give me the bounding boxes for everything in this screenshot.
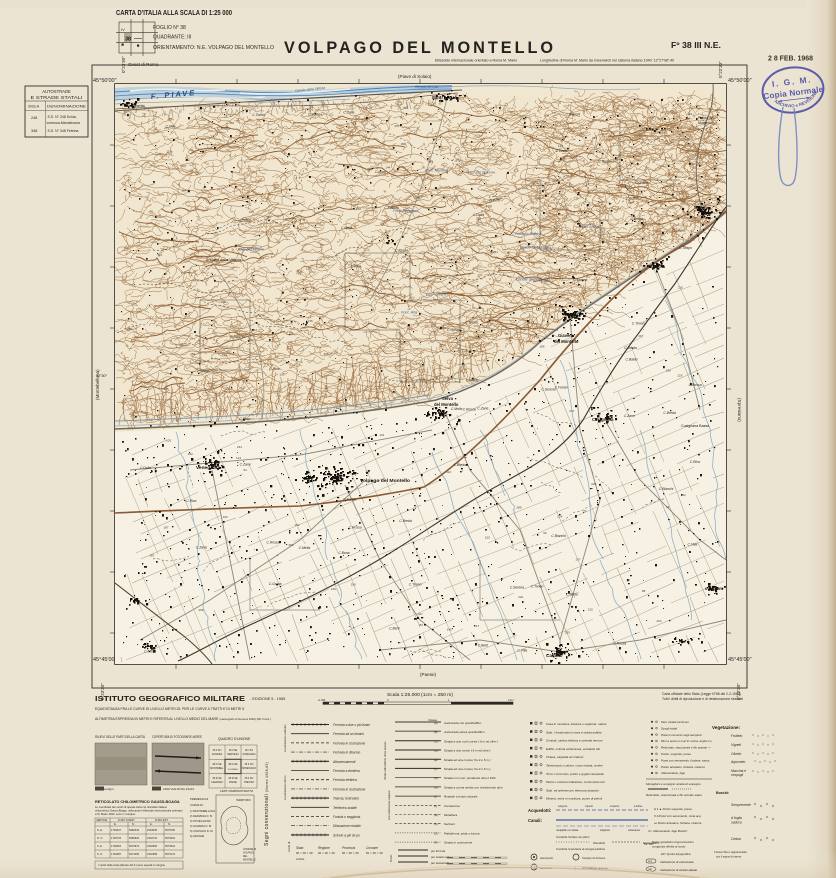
svg-text:210: 210: [588, 607, 593, 611]
svg-text:MONTELLO: MONTELLO: [243, 860, 256, 862]
svg-text:C.Breda: C.Breda: [466, 378, 479, 382]
svg-text:COPERTURA DI FOTOGRAFIE AEREE: COPERTURA DI FOTOGRAFIE AEREE: [152, 735, 202, 739]
svg-text:Aeroporto: Aeroporto: [539, 856, 554, 860]
svg-text:EQUIDISTANZA FRA LE CURVE: EQUIDISTANZA FRA LE CURVE DI LIVELLO MET…: [95, 707, 244, 711]
svg-text:Provincia: Provincia: [342, 846, 355, 850]
svg-text:Pietra o colonna indicatrice,: Pietra o colonna indicatrice, monumento …: [546, 780, 605, 784]
svg-text:135: 135: [308, 319, 313, 323]
svg-text:Ferrovia in disarmo: Ferrovia in disarmo: [333, 751, 361, 755]
svg-text:FUSO OVEST: FUSO OVEST: [118, 818, 135, 822]
svg-text:1) MONTEBELLUNA: 1) MONTEBELLUNA: [190, 809, 215, 813]
svg-text:VOLPAGO DEL MONTELLO: VOLPAGO DEL MONTELLO: [284, 39, 556, 57]
svg-text:sotterraneo: sotterraneo: [628, 829, 641, 832]
svg-text:130: 130: [431, 323, 436, 327]
svg-text:E.: E.: [150, 822, 153, 826]
svg-text:139: 139: [331, 587, 336, 591]
svg-text:345: 345: [319, 205, 324, 209]
svg-text:347: 347: [266, 216, 271, 220]
svg-text:Χ Α Pozzi con serramento, nor: Χ Α Pozzi con serramento, noria acq.: [654, 814, 702, 818]
svg-text:312: 312: [446, 470, 451, 474]
svg-text:C.Serena: C.Serena: [308, 112, 322, 116]
svg-text:45°45′00″: 45°45′00″: [728, 657, 752, 663]
svg-text:scoperto: scoperto: [610, 805, 620, 808]
svg-text:136: 136: [356, 207, 361, 211]
svg-text:Autostrada senza spartitraffic: Autostrada senza spartitraffico: [443, 730, 485, 734]
svg-text:VERTICE: VERTICE: [96, 818, 107, 822]
svg-text:C.Berti: C.Berti: [478, 644, 489, 648]
svg-text:187: 187: [164, 526, 169, 530]
svg-text:45°45′00″: 45°45′00″: [93, 657, 117, 663]
svg-text:124: 124: [236, 456, 241, 460]
svg-text:Strade utilizzabili in clima a: Strade utilizzabili in clima asciutto: [383, 741, 387, 780]
svg-text:1748715: 1748715: [111, 836, 122, 840]
svg-text:144: 144: [259, 256, 264, 260]
svg-text:C.Breda: C.Breda: [217, 126, 230, 130]
svg-text:84: 84: [554, 225, 558, 229]
svg-text:A 4: A 4: [648, 859, 652, 863]
svg-text:QUADRANTE: III: QUADRANTE: III: [153, 35, 191, 41]
svg-text:86: 86: [505, 332, 509, 336]
svg-text:chilometrico Gauss-Boaga, util: chilometrico Gauss-Boaga, utilizzando l’…: [95, 809, 183, 813]
svg-text:256: 256: [351, 582, 356, 586]
svg-text:Ta. 667: Ta. 667: [644, 842, 654, 846]
svg-text:Pista in cemento negli aeropor: Pista in cemento negli aeroporti: [661, 733, 702, 737]
svg-text:Mulattiera: Mulattiera: [444, 813, 458, 817]
svg-text:Tabernacolo o pilone, croce is: Tabernacolo o pilone, croce isolata, cim…: [546, 764, 604, 768]
svg-text:186: 186: [666, 369, 671, 373]
svg-text:0°23′30″: 0°23′30″: [121, 56, 126, 73]
svg-text:Reticolato, staccionata e filo: Reticolato, staccionata e filo spinato s…: [646, 793, 702, 797]
svg-text:Casa in muratura, baracca o ca: Casa in muratura, baracca o capanna, rud…: [546, 722, 607, 726]
svg-text:308: 308: [544, 114, 549, 118]
svg-text:DENOMINAZIONE: DENOMINAZIONE: [47, 105, 87, 109]
svg-text:per autostrada: per autostrada: [430, 861, 449, 865]
svg-text:RETICOLATO CHILOMETRICO GAUS: RETICOLATO CHILOMETRICO GAUSS-BOAGA: [95, 800, 180, 804]
svg-text:Sempreverde: Sempreverde: [731, 803, 751, 807]
svg-text:COMUNE DI: COMUNE DI: [243, 849, 257, 851]
svg-text:1739064: 1739064: [111, 844, 122, 848]
svg-text:Classe: Classe: [428, 718, 438, 722]
svg-text:5070174: 5070174: [165, 852, 176, 856]
svg-text:Stab. ed antenne per telecomun: Stab. ed antenne per telecomunicazioni: [546, 788, 599, 792]
svg-text:C.Bianchi: C.Bianchi: [566, 112, 581, 116]
svg-text:C.Breda: C.Breda: [465, 321, 478, 325]
svg-text:38 III NE: 38 III NE: [228, 763, 238, 766]
svg-text:O: O: [536, 306, 541, 313]
svg-text:113: 113: [365, 321, 370, 325]
svg-text:38 II SO: 38 II SO: [213, 749, 222, 752]
svg-text:- EDIZIONE 5 - 1965: - EDIZIONE 5 - 1965: [250, 697, 285, 701]
svg-text:TERRITORIO: TERRITORIO: [236, 799, 251, 802]
svg-text:C.Berti: C.Berti: [389, 627, 400, 631]
svg-text:VOLPAGO: VOLPAGO: [243, 852, 254, 855]
svg-text:307: 307: [418, 612, 423, 616]
svg-text:Attraversamenti: Attraversamenti: [332, 760, 356, 764]
svg-text:C.Tonon: C.Tonon: [531, 584, 544, 588]
svg-text:C.Mella: C.Mella: [144, 650, 156, 654]
svg-text:296: 296: [221, 300, 226, 304]
svg-text:2302710: 2302710: [147, 836, 158, 840]
svg-text:308: 308: [414, 196, 419, 200]
svg-text:(G): (G): [434, 776, 438, 780]
svg-text:C.Zane: C.Zane: [196, 546, 207, 550]
svg-text:C.Rossa: C.Rossa: [395, 249, 408, 253]
svg-text:5070522: 5070522: [165, 844, 176, 848]
svg-text:(H): (H): [434, 785, 438, 789]
svg-text:308: 308: [324, 352, 329, 356]
svg-text:C.Serena: C.Serena: [541, 387, 555, 391]
svg-text:SUSEGANA: SUSEGANA: [242, 753, 256, 756]
svg-text:94: 94: [244, 468, 248, 472]
svg-text:38 I SO: 38 I SO: [245, 749, 253, 752]
svg-text:C.Zane: C.Zane: [624, 414, 635, 418]
svg-text:QUADRO D’UNIONE: QUADRO D’UNIONE: [218, 737, 251, 741]
svg-text:(M): (M): [434, 813, 438, 817]
svg-text:348: 348: [31, 129, 37, 133]
svg-text:C.Zane: C.Zane: [240, 462, 251, 466]
svg-text:38 II SE: 38 II SE: [229, 749, 238, 752]
svg-text:C.Tonon: C.Tonon: [252, 113, 265, 117]
svg-text:Il bosco fitto è rappresentato: Il bosco fitto è rappresentato: [714, 850, 747, 854]
svg-text:confine: confine: [296, 857, 305, 861]
svg-text:(E): (E): [434, 758, 438, 762]
svg-text:2) NERVESA D. B.: 2) NERVESA D. B.: [190, 814, 213, 818]
svg-text:(Paese): (Paese): [420, 672, 437, 677]
svg-text:N. E.: N. E.: [97, 828, 103, 832]
svg-text:C.Breda: C.Breda: [454, 463, 467, 467]
svg-text:38 II SO: 38 II SO: [245, 777, 254, 780]
svg-text:103: 103: [166, 439, 171, 443]
svg-text:AUTOSTRADE: AUTOSTRADE: [42, 89, 71, 94]
svg-text:A scartamento ridotto: A scartamento ridotto: [283, 775, 287, 800]
svg-text:Santi Angeli: Santi Angeli: [432, 95, 457, 100]
svg-text:253: 253: [190, 352, 195, 356]
svg-text:C.Riva: C.Riva: [186, 499, 196, 503]
svg-text:C.Serena: C.Serena: [510, 585, 524, 589]
svg-text:Font. Frescada: Font. Frescada: [393, 209, 419, 213]
svg-text:103: 103: [279, 373, 284, 377]
svg-text:88: 88: [642, 589, 646, 593]
svg-text:Font. Munera: Font. Munera: [425, 169, 448, 173]
svg-text:38 III SE: 38 III SE: [212, 777, 222, 780]
svg-text:Reticolato, staccionata e filo: Reticolato, staccionata e filo spinato —: [661, 746, 711, 750]
svg-text:⊙○ Abbeveratoio, lago Boschi: ⊙○ Abbeveratoio, lago Boschi:: [648, 829, 688, 833]
svg-text:137: 137: [575, 558, 580, 562]
svg-text:Ghirada dei Lavi: Ghirada dei Lavi: [415, 85, 439, 89]
svg-text:PAESE: PAESE: [229, 781, 237, 784]
svg-text:Canale della Vittoria: Canale della Vittoria: [516, 278, 550, 282]
svg-text:C.Serena: C.Serena: [573, 278, 587, 282]
svg-text:(Piave di Solaio): (Piave di Solaio): [398, 74, 432, 79]
svg-text:Le coordinate dei vertici di q: Le coordinate dei vertici di questa cart…: [95, 805, 168, 809]
svg-text:Riva del Molino: Riva del Molino: [238, 248, 264, 252]
svg-text:C.Tonon: C.Tonon: [409, 583, 422, 587]
svg-text:135: 135: [378, 366, 383, 370]
svg-text:C.Tonon: C.Tonon: [632, 322, 645, 326]
svg-text:Punto geodetico trigonometrico: Punto geodetico trigonometrico: [652, 840, 694, 844]
svg-text:.247 Quota topografica: .247 Quota topografica: [660, 852, 691, 856]
svg-text:Abbeveratoio, lago: Abbeveratoio, lago: [660, 771, 685, 775]
svg-text:Ferrovia in costruzione: Ferrovia in costruzione: [333, 787, 365, 791]
svg-text:Fontana Bianca: Fontana Bianca: [515, 232, 542, 236]
svg-text:Boschi:: Boschi:: [716, 791, 729, 795]
svg-text:1960 Vold RC5a 23x23: 1960 Vold RC5a 23x23: [163, 787, 194, 791]
svg-text:(N): (N): [434, 822, 438, 826]
svg-text:Pianta del: Pianta del: [698, 116, 714, 120]
svg-text:220: 220: [591, 482, 596, 486]
svg-text:coperto: coperto: [585, 805, 594, 808]
svg-text:74: 74: [626, 578, 630, 582]
svg-text:C.Mella: C.Mella: [451, 407, 463, 411]
svg-text:Rotabile a fondo naturale: Rotabile a fondo naturale: [444, 795, 478, 799]
svg-text:2302389: 2302389: [147, 852, 158, 856]
svg-text:Pozzi con serramento, fontana,: Pozzi con serramento, fontana, vasca: [661, 758, 710, 762]
svg-text:E.: E.: [114, 822, 117, 826]
svg-text:C.Breda: C.Breda: [663, 411, 676, 415]
svg-text:149: 149: [447, 628, 452, 632]
svg-text:283: 283: [289, 543, 294, 547]
svg-text:Carrareccia: Carrareccia: [444, 804, 460, 808]
svg-text:S.Maria della Vittoria: S.Maria della Vittoria: [206, 258, 242, 262]
svg-text:C.Grava: C.Grava: [673, 229, 686, 233]
svg-text:187: 187: [149, 553, 154, 557]
svg-text:308: 308: [401, 142, 406, 146]
svg-text:217: 217: [474, 624, 479, 628]
svg-text:(D): (D): [434, 749, 438, 753]
svg-text:Bavaria: Bavaria: [649, 264, 665, 269]
svg-text:Condotta forzata con piloni: Condotta forzata con piloni: [556, 835, 590, 839]
svg-text:m.300: m.300: [318, 698, 326, 702]
svg-text:5071056: 5071056: [129, 852, 140, 856]
svg-text:C.Riva: C.Riva: [351, 265, 361, 269]
svg-text:Vegetazione:: Vegetazione:: [712, 725, 741, 730]
svg-text:Torre o torre faro, pozzo e gu: Torre o torre faro, pozzo e guglia campa…: [546, 772, 604, 776]
svg-text:248: 248: [31, 116, 37, 120]
svg-text:267: 267: [638, 334, 643, 338]
svg-text:Montello: Montello: [698, 121, 712, 125]
svg-text:Ferrovia a dentiera: Ferrovia a dentiera: [333, 769, 360, 773]
svg-text:Pozzo artesiano, fontana, cist: Pozzo artesiano, fontana, cisterna: [661, 765, 705, 769]
svg-text:C.Dalla: C.Dalla: [140, 466, 151, 470]
svg-text:TREVISO: TREVISO: [244, 781, 255, 784]
svg-text:C.Breda: C.Breda: [624, 346, 637, 350]
svg-text:FUSO EST: FUSO EST: [155, 818, 168, 822]
svg-text:N.: N.: [168, 822, 171, 826]
svg-text:5079462: 5079462: [165, 836, 176, 840]
svg-text:Oleodotto: Oleodotto: [593, 841, 606, 845]
svg-text:2 8 FEB. 1968: 2 8 FEB. 1968: [768, 54, 813, 63]
svg-text:Miniera, serra in muratura, po: Miniera, serra in muratura, pozzo di pet…: [546, 797, 603, 801]
svg-text:Fos. Vecchio: Fos. Vecchio: [426, 292, 448, 296]
svg-text:Ovest di Roma: Ovest di Roma: [128, 62, 159, 67]
svg-text:224: 224: [557, 514, 562, 518]
svg-text:247: 247: [365, 470, 370, 474]
svg-text:C.Riva: C.Riva: [240, 218, 250, 222]
svg-text:Ferrovia in costruzione: Ferrovia in costruzione: [333, 741, 365, 745]
svg-text:1749087: 1749087: [111, 852, 122, 856]
svg-text:1739027: 1739027: [111, 828, 122, 832]
svg-text:C.Riva: C.Riva: [269, 367, 279, 371]
svg-text:(L): (L): [434, 804, 437, 808]
svg-text:Indicazione di strada statale: Indicazione di strada statale: [660, 868, 698, 872]
svg-text:2 km.: 2 km.: [508, 698, 515, 702]
svg-text:MONTEBEL.: MONTEBEL.: [210, 767, 224, 770]
svg-text:S. O.: S. O.: [97, 852, 103, 856]
svg-text:solo nella buona stagione: solo nella buona stagione: [387, 790, 391, 820]
svg-text:(C): (C): [434, 739, 438, 743]
svg-text:222: 222: [185, 158, 190, 162]
svg-text:Limiti di:: Limiti di:: [287, 841, 291, 852]
svg-text:ovegliaro: ovegliaro: [705, 586, 724, 591]
svg-text:215: 215: [422, 177, 427, 181]
svg-text:144: 144: [385, 166, 390, 170]
svg-text:(I): (I): [434, 795, 437, 799]
svg-text:262: 262: [681, 493, 686, 497]
svg-text:vonesca-Marosticana: vonesca-Marosticana: [47, 121, 80, 125]
svg-text:C.Rossa: C.Rossa: [598, 159, 611, 163]
svg-text:PREMESSA DI: PREMESSA DI: [190, 797, 208, 801]
svg-text:234: 234: [237, 445, 242, 449]
svg-text:del Montello: del Montello: [554, 339, 579, 344]
svg-text:VOLPAGO: VOLPAGO: [228, 768, 239, 771]
svg-text:Ellissoide internazionale orie: Ellissoide internazionale orientato a Ro…: [435, 59, 517, 63]
svg-text:124: 124: [558, 144, 563, 148]
svg-text:5079760: 5079760: [165, 828, 176, 832]
svg-text:CAERANO: CAERANO: [211, 781, 223, 784]
svg-text:94: 94: [666, 505, 670, 509]
svg-text:C.Breda: C.Breda: [399, 519, 412, 523]
svg-text:C.Breda: C.Breda: [631, 217, 644, 221]
svg-text:RILIEVI DELLE PARTI DELLA CART: RILIEVI DELLE PARTI DELLA CARTA: [95, 735, 146, 739]
svg-text:352: 352: [188, 452, 193, 456]
svg-text:C.Moro: C.Moro: [239, 417, 250, 421]
svg-text:per ferrovia: per ferrovia: [430, 849, 446, 853]
svg-text:Strada a due o più corsie ( 6: Strada a due o più corsie ( 6 m ed oltre…: [444, 739, 498, 743]
svg-text:C.Mella: C.Mella: [299, 546, 311, 550]
svg-text:204: 204: [657, 619, 662, 623]
svg-text:C.Bianchi: C.Bianchi: [659, 487, 674, 491]
svg-text:C.Bona: C.Bona: [338, 551, 349, 555]
svg-text:congiunta riferita al suolo: congiunta riferita al suolo: [652, 845, 686, 849]
svg-text:C.Gatto: C.Gatto: [556, 149, 568, 153]
svg-text:SPRESIANO: SPRESIANO: [242, 767, 256, 770]
svg-text:345: 345: [164, 387, 169, 391]
svg-text:206: 206: [259, 144, 264, 148]
svg-text:C.Furlan: C.Furlan: [343, 498, 356, 502]
svg-text:114: 114: [182, 189, 187, 193]
svg-text:C.Rossa: C.Rossa: [349, 526, 362, 530]
svg-text:100: 100: [223, 515, 228, 519]
svg-text:Strada ad una corsia ( fra 3 e: Strada ad una corsia ( fra 3 e 6 m ): [444, 758, 491, 762]
svg-text:290: 290: [127, 327, 132, 331]
svg-text:266: 266: [199, 608, 204, 612]
svg-text:311: 311: [157, 253, 162, 257]
svg-text:287: 287: [456, 158, 461, 162]
svg-text:C.Berti: C.Berti: [489, 199, 500, 203]
svg-text:212: 212: [252, 328, 257, 332]
svg-text:C.Zane: C.Zane: [477, 406, 488, 410]
svg-text:Ferrovia elettrica: Ferrovia elettrica: [333, 778, 357, 782]
svg-text:125: 125: [306, 266, 311, 270]
svg-text:5) VOLPAGO D. M.: 5) VOLPAGO D. M.: [190, 829, 213, 833]
svg-text:Frutteto: Frutteto: [731, 734, 743, 738]
svg-text:T: T: [402, 294, 407, 301]
svg-text:186: 186: [540, 345, 545, 349]
svg-text:83: 83: [420, 623, 424, 627]
svg-text:(Montebelluna): (Montebelluna): [95, 369, 100, 400]
svg-text:Carta ufficiale dello Stato (L: Carta ufficiale dello Stato (Legge N°68 …: [662, 692, 741, 696]
svg-text:IV: IV: [121, 27, 125, 32]
svg-text:215: 215: [485, 536, 490, 540]
svg-text:ORIENTAMENTO: N.E. VOLPAGO DEL: ORIENTAMENTO: N.E. VOLPAGO DEL MONTELLO: [153, 45, 274, 51]
svg-text:Cusignana: Cusignana: [592, 417, 614, 422]
svg-text:DEL: DEL: [243, 856, 248, 858]
svg-text:N.: N.: [132, 822, 135, 826]
svg-text:5080694: 5080694: [129, 836, 140, 840]
svg-text:(O): (O): [434, 831, 438, 835]
svg-text:Strada con muri, pendenza oltr: Strada con muri, pendenza oltre il 10%: [444, 776, 496, 780]
svg-text:C.Dalla: C.Dalla: [343, 110, 354, 114]
svg-text:Agrumeto: Agrumeto: [730, 760, 745, 764]
svg-text:Scala 1:25.000 (1cm = 250 m): Scala 1:25.000 (1cm = 250 m): [387, 692, 453, 697]
svg-text:C.Rossa: C.Rossa: [463, 408, 476, 412]
svg-text:Tranvia, funicolare: Tranvia, funicolare: [333, 797, 359, 801]
svg-text:C.Furlan: C.Furlan: [555, 386, 568, 390]
svg-text:Comune: Comune: [366, 846, 378, 850]
svg-text:Bosco della Fratta: Bosco della Fratta: [520, 246, 551, 250]
svg-text:Strada a due corsie ( 6 m ed o: Strada a due corsie ( 6 m ed oltre ): [444, 749, 490, 753]
svg-text:E STRADE STATALI: E STRADE STATALI: [31, 95, 83, 100]
svg-text:C.Villa: C.Villa: [517, 649, 527, 653]
svg-text:Centrali, cabina elettrica e c: Centrali, cabina elettrica e centrale te…: [546, 739, 603, 743]
svg-text:38: 38: [125, 37, 131, 43]
svg-text:Strada a corsia stretta con ri: Strada a corsia stretta con rivestimento…: [444, 785, 503, 789]
svg-text:0°22′30″: 0°22′30″: [718, 61, 723, 78]
svg-text:2293005: 2293005: [147, 828, 158, 832]
svg-text:Campo di fortuna: Campo di fortuna: [582, 856, 605, 860]
svg-text:255: 255: [565, 630, 570, 634]
svg-text:142: 142: [229, 121, 234, 125]
svg-text:Canali:: Canali:: [528, 818, 542, 823]
svg-text:171: 171: [166, 150, 171, 154]
svg-text:148: 148: [222, 354, 227, 358]
svg-text:38 II NO: 38 II NO: [245, 763, 254, 766]
svg-text:C.Riva: C.Riva: [690, 460, 700, 464]
svg-text:C.Furlan: C.Furlan: [447, 328, 460, 332]
svg-text:C.Grava: C.Grava: [269, 582, 282, 586]
svg-text:Longitudine di Roma M. Mario d: Longitudine di Roma M. Mario da Greenwic…: [540, 59, 674, 63]
svg-text:(B): (B): [434, 730, 438, 734]
svg-text:Funivia o seggiovia: Funivia o seggiovia: [333, 815, 361, 819]
svg-text:Sovilla: Sovilla: [694, 205, 709, 210]
svg-text:a sifone: a sifone: [634, 805, 643, 808]
svg-text:Ferrovia a due o più binari: Ferrovia a due o più binari: [333, 723, 370, 727]
svg-text:307: 307: [394, 124, 399, 128]
svg-text:C.Villa: C.Villa: [688, 543, 698, 547]
svg-text:Ponti:: Ponti:: [389, 854, 393, 862]
svg-text:(Spresiano): (Spresiano): [737, 398, 742, 422]
svg-text:210: 210: [678, 285, 683, 289]
svg-text:101: 101: [379, 433, 384, 437]
svg-text:C.Moro: C.Moro: [375, 170, 386, 174]
svg-text:318: 318: [476, 217, 481, 221]
svg-text:ALTIMETRIA ESPRESSA IN METR: ALTIMETRIA ESPRESSA IN METRI E RIFERITA …: [95, 717, 271, 721]
svg-text:S.Margherita: S.Margherita: [124, 104, 145, 108]
svg-text:LIMITI AMMINISTRATIVI: LIMITI AMMINISTRATIVI: [220, 789, 253, 793]
svg-text:191: 191: [600, 230, 605, 234]
svg-text:Strada in costruzione: Strada in costruzione: [444, 841, 473, 845]
svg-text:I vertici della carta (dal la: I vertici della carta (dal lato del F.) …: [98, 863, 165, 867]
